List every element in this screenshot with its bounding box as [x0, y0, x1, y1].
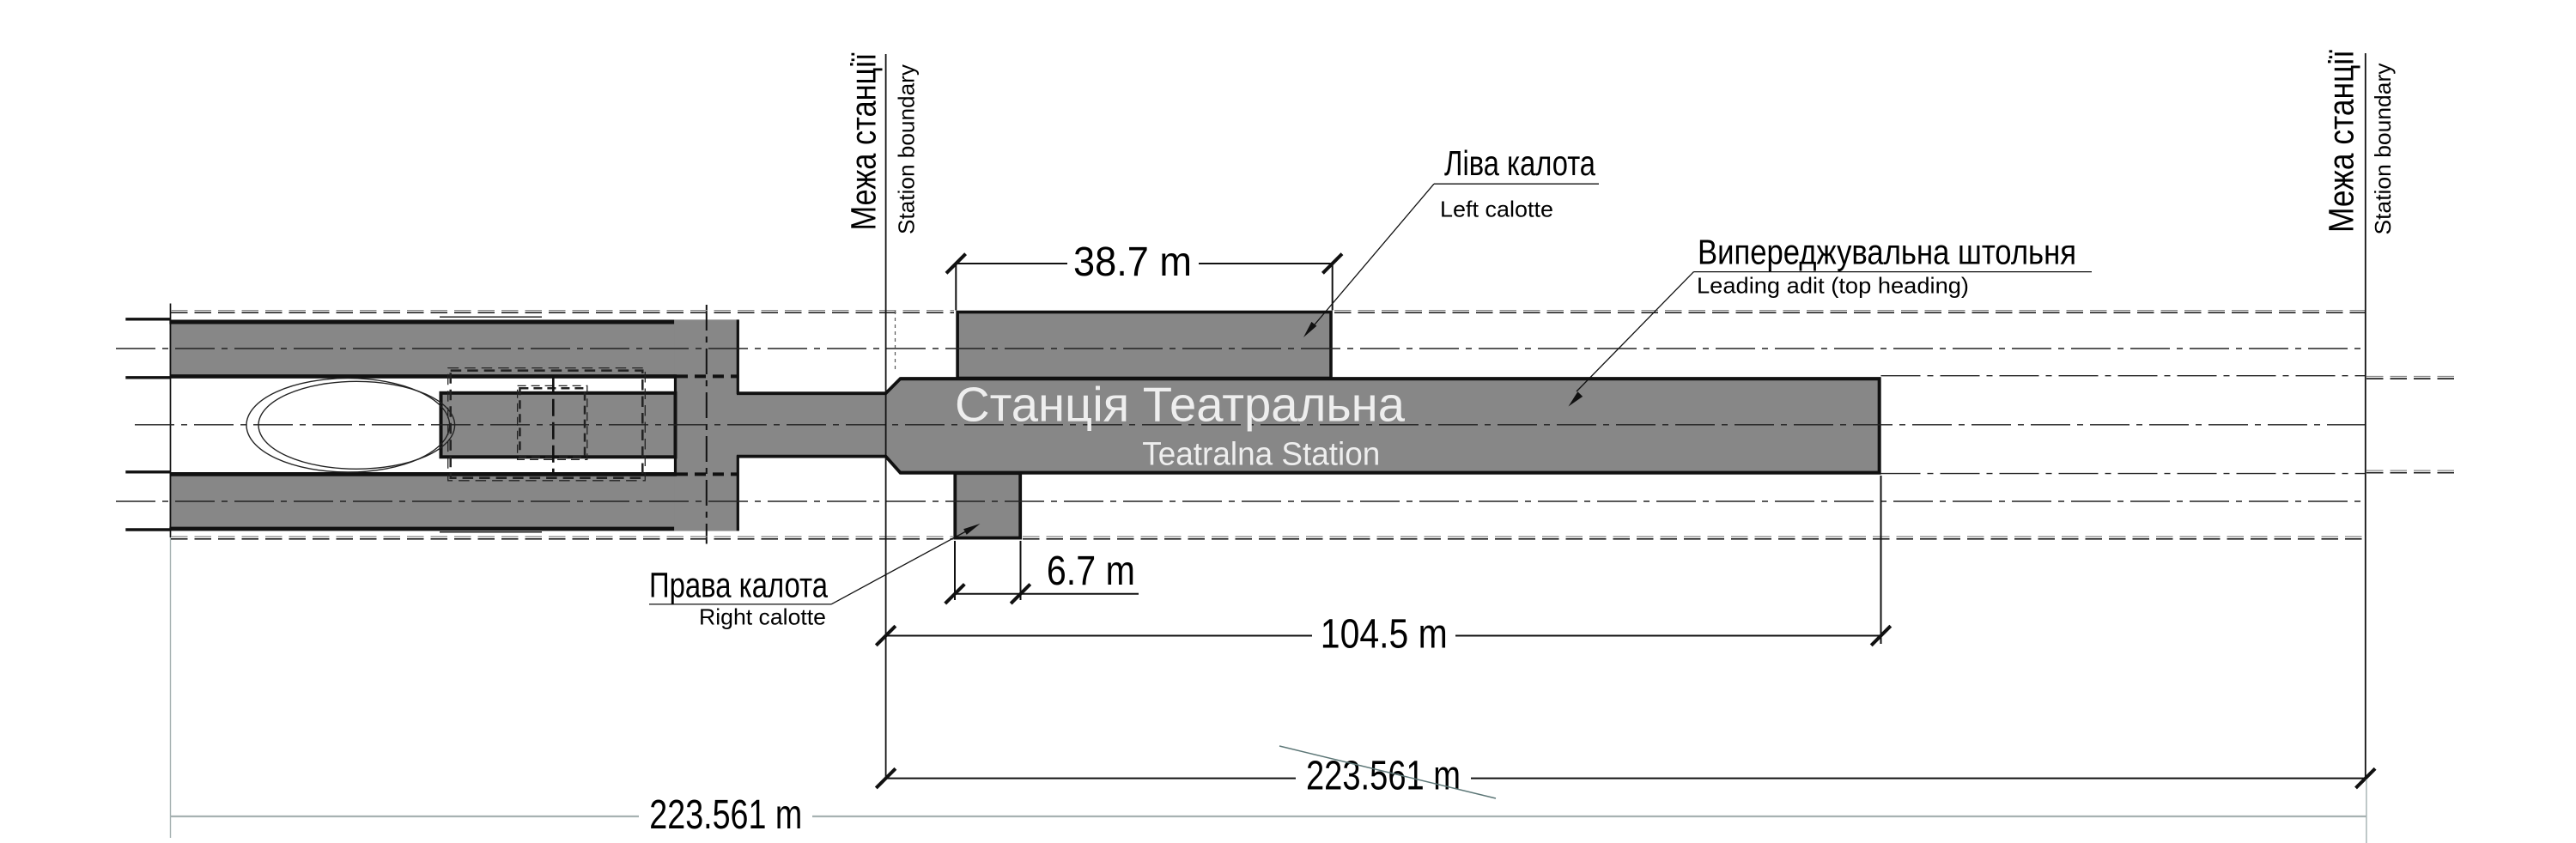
svg-text:Ліва калота: Ліва калота [1444, 143, 1595, 183]
svg-text:38.7 m: 38.7 m [1073, 240, 1192, 285]
svg-text:Station boundary: Station boundary [894, 64, 920, 234]
svg-text:Межа станції: Межа станції [844, 53, 884, 231]
svg-text:Station boundary: Station boundary [2370, 64, 2396, 235]
svg-text:Left calotte: Left calotte [1440, 197, 1553, 222]
svg-text:104.5 m: 104.5 m [1321, 611, 1448, 657]
svg-text:6.7 m: 6.7 m [1047, 549, 1135, 594]
svg-text:223.561 m: 223.561 m [1306, 754, 1461, 799]
svg-text:Права калота: Права калота [649, 565, 828, 604]
svg-text:Станція Театральна: Станція Театральна [955, 378, 1405, 433]
svg-text:223.561 m: 223.561 m [649, 792, 802, 838]
svg-text:Right calotte: Right calotte [699, 604, 826, 630]
svg-text:Межа станції: Межа станції [2322, 50, 2361, 233]
svg-text:Teatralna Station: Teatralna Station [1142, 437, 1380, 473]
svg-text:Випереджувальна штольня: Випереджувальна штольня [1698, 233, 2076, 272]
svg-text:Leading adit (top heading): Leading adit (top heading) [1697, 273, 1969, 299]
